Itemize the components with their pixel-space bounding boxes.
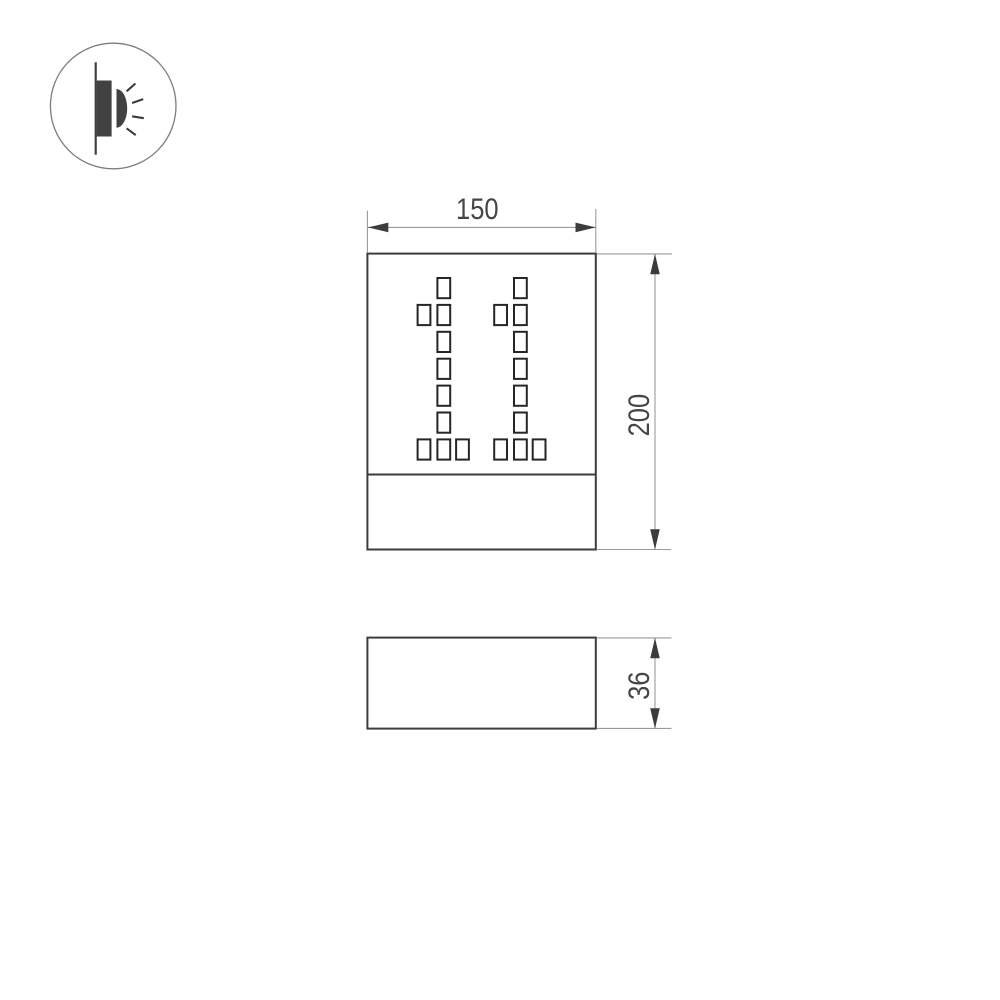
svg-text:150: 150 — [456, 192, 499, 225]
svg-text:200: 200 — [622, 394, 655, 437]
svg-text:36: 36 — [622, 672, 655, 700]
